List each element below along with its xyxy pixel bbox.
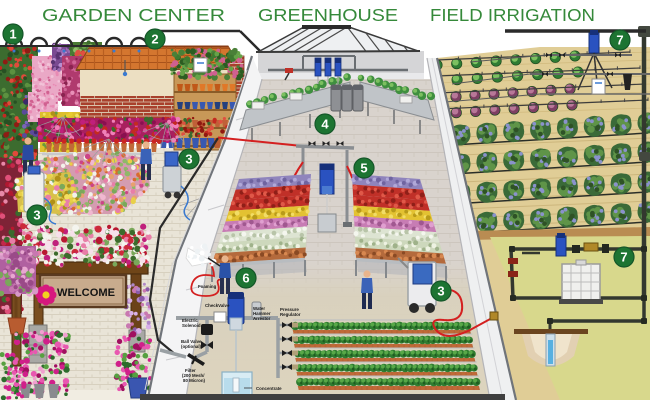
svg-text:5: 5: [360, 161, 367, 176]
svg-text:Concentrate: Concentrate: [256, 386, 282, 391]
svg-text:Arrestor: Arrestor: [253, 316, 271, 321]
svg-text:1: 1: [9, 27, 16, 42]
svg-text:GREENHOUSE: GREENHOUSE: [258, 5, 398, 25]
svg-text:WELCOME: WELCOME: [57, 287, 115, 299]
svg-text:GARDEN CENTER: GARDEN CENTER: [42, 5, 225, 25]
svg-text:4: 4: [321, 117, 329, 132]
svg-text:3: 3: [185, 152, 192, 167]
svg-text:Regulator: Regulator: [280, 312, 301, 317]
svg-text:80 Micron): 80 Micron): [183, 378, 205, 383]
svg-text:CheckValve: CheckValve: [205, 303, 230, 308]
svg-text:6: 6: [242, 271, 249, 286]
svg-text:7: 7: [616, 33, 623, 48]
svg-text:3: 3: [33, 208, 40, 223]
svg-text:7: 7: [620, 250, 627, 265]
svg-text:FIELD IRRIGATION: FIELD IRRIGATION: [430, 5, 595, 25]
svg-text:(optional): (optional): [181, 344, 202, 349]
svg-text:Solenoid: Solenoid: [182, 323, 201, 328]
svg-text:2: 2: [151, 32, 158, 47]
svg-text:3: 3: [437, 284, 444, 299]
svg-text:Foaming: Foaming: [198, 284, 217, 289]
